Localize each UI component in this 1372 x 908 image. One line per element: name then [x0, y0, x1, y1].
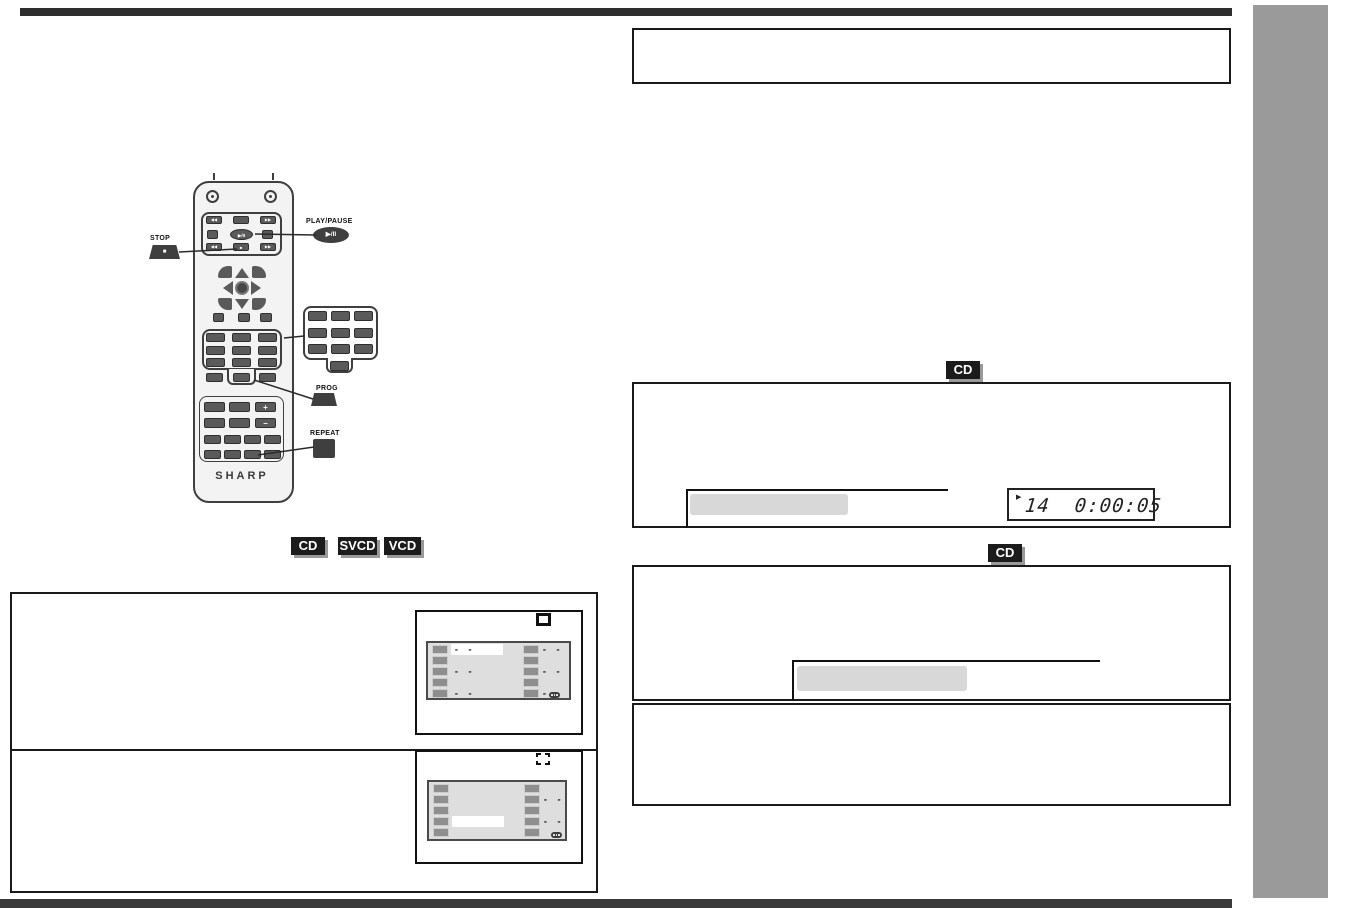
- number-key: [258, 333, 277, 342]
- repeat-callout-label: REPEAT: [310, 430, 340, 437]
- prev-key: ◀◀: [206, 216, 222, 224]
- enter-key: [235, 281, 249, 295]
- program-row: [433, 805, 561, 816]
- screen-key: [523, 645, 539, 654]
- screen-slot: [452, 827, 504, 838]
- screen-key: [433, 828, 449, 837]
- step-key: [262, 230, 273, 239]
- function-key: [264, 435, 281, 444]
- section1-cd-badge: CD: [946, 361, 980, 379]
- number-key-large: [331, 328, 350, 338]
- section3-box: [632, 703, 1231, 806]
- screen-dash: - -: [543, 817, 583, 826]
- indicator-pill-icon: [551, 832, 562, 838]
- program-row: - -- -: [432, 666, 565, 677]
- audio-key: [233, 216, 249, 224]
- function-key: [224, 435, 241, 444]
- screen-key: [433, 795, 449, 804]
- number-key: [206, 358, 225, 367]
- screen-key: [433, 817, 449, 826]
- repeat-key: [244, 450, 261, 459]
- brand-logo: SHARP: [212, 470, 272, 482]
- slow-key: [207, 230, 218, 239]
- vcd-badge: VCD: [384, 537, 421, 555]
- screen-key: [524, 795, 540, 804]
- number-key-large: [331, 344, 350, 354]
- highlighted-text-bar: [797, 666, 967, 691]
- svcd-badge: SVCD: [338, 537, 377, 555]
- highlighted-text-bar: [690, 494, 848, 515]
- screen-key: [524, 828, 540, 837]
- screen-key: [524, 817, 540, 826]
- screen-key: [523, 656, 539, 665]
- bottom-rule: [0, 899, 1232, 908]
- screen-slot: [452, 805, 504, 816]
- screen-slot: [451, 677, 503, 688]
- setup-key: [213, 313, 224, 322]
- play-pause-callout-button: ▶/II: [313, 227, 349, 243]
- number-key-large: [308, 311, 327, 321]
- function-key: [229, 402, 250, 412]
- indicator-pill-icon: [549, 692, 560, 698]
- screen-dash: - -: [542, 667, 582, 676]
- screen-slot: [451, 655, 503, 666]
- remote-antenna-tick: [272, 173, 274, 180]
- section2-cd-badge: CD: [988, 544, 1022, 562]
- function-key: [229, 418, 250, 428]
- prog-callout-button: [311, 393, 337, 406]
- program-row: - -- -: [432, 688, 565, 699]
- play-indicator-icon: ▶: [1016, 493, 1021, 501]
- number-key: [258, 358, 277, 367]
- screen-slot: [452, 783, 504, 794]
- number-key: [206, 346, 225, 355]
- function-key: [204, 402, 225, 412]
- repeat-callout-button: [313, 439, 335, 458]
- screen-key: [433, 784, 449, 793]
- screen-key: [524, 806, 540, 815]
- number-key: [232, 346, 251, 355]
- frame-icon: [536, 613, 551, 626]
- callout-leader-lines: [0, 0, 600, 600]
- screen-key: [432, 656, 448, 665]
- chapter-tab-sidebar: [1253, 5, 1328, 898]
- function-key: [204, 435, 221, 444]
- next-key: ▶▶: [260, 216, 276, 224]
- function-key: [244, 435, 261, 444]
- screen-slot: - -: [451, 688, 503, 699]
- program-row: [432, 655, 565, 666]
- stop-callout-button: ■: [149, 245, 180, 259]
- title-key: [238, 313, 250, 322]
- remote-antenna-tick: [213, 173, 215, 180]
- screen-key: [432, 645, 448, 654]
- program-menu-panel-1: - -- -- -- -- -- -: [426, 641, 571, 700]
- screen-dash: - -: [542, 645, 582, 654]
- program-row: - -: [433, 794, 561, 805]
- program-row: [432, 677, 565, 688]
- screen-key: [433, 806, 449, 815]
- stop-callout-label: STOP: [150, 235, 170, 242]
- stop-key: ■: [233, 243, 249, 251]
- number-key-large: [354, 328, 373, 338]
- screen-dash: - -: [542, 689, 582, 698]
- screen-key: [523, 667, 539, 676]
- ff-key: ▶▶: [260, 243, 276, 251]
- program-row: - -: [433, 816, 561, 827]
- screen-key: [523, 678, 539, 687]
- number-key-large: [331, 311, 350, 321]
- program-row: [433, 827, 561, 838]
- function-key: [264, 450, 281, 459]
- prog-key: [259, 373, 276, 382]
- number-key-large: [330, 361, 349, 371]
- number-key: [206, 333, 225, 342]
- screen-key: [432, 689, 448, 698]
- section2-box: [632, 565, 1231, 701]
- eject-button: [264, 190, 277, 203]
- number-key: [232, 333, 251, 342]
- program-menu-panel-2: - -- -: [427, 780, 567, 841]
- screen-slot: [452, 794, 504, 805]
- screen-key: [524, 784, 540, 793]
- power-button: [206, 190, 219, 203]
- function-key: [224, 450, 241, 459]
- cd-badge: CD: [291, 537, 325, 555]
- number-key-10plus: [233, 373, 250, 382]
- program-row: [433, 783, 561, 794]
- screen-key: [432, 678, 448, 687]
- number-key: [258, 346, 277, 355]
- screen-key: [432, 667, 448, 676]
- play-pause-callout-label: PLAY/PAUSE: [306, 218, 353, 225]
- screen-key: [523, 689, 539, 698]
- screen-input-highlight: - -: [451, 644, 503, 655]
- function-key: [204, 418, 225, 428]
- fl-display-readout: ▶ 14 0:00:05: [1007, 488, 1155, 521]
- number-key-large: [308, 328, 327, 338]
- screen-dash: - -: [543, 795, 583, 804]
- prog-callout-label: PROG: [316, 385, 338, 392]
- volume-plus-key: +: [255, 402, 276, 412]
- remote-illustration: ◀◀ ▶▶ ▶/II ◀◀ ■ ▶▶: [0, 0, 600, 600]
- number-key-large: [354, 344, 373, 354]
- clear-key: [206, 373, 223, 382]
- number-key-large: [308, 344, 327, 354]
- display-track-time: 14 0:00:05: [1024, 495, 1163, 517]
- play-pause-key: ▶/II: [230, 229, 253, 240]
- rew-key: ◀◀: [206, 243, 222, 251]
- volume-minus-key: −: [255, 418, 276, 428]
- number-key: [232, 358, 251, 367]
- screen-input-highlight: [452, 816, 504, 827]
- function-key: [204, 450, 221, 459]
- number-key-large: [354, 311, 373, 321]
- manual-page: ◀◀ ▶▶ ▶/II ◀◀ ■ ▶▶: [0, 0, 1372, 908]
- program-row: - -- -: [432, 644, 565, 655]
- corners-icon: [536, 753, 550, 765]
- note-box-top: [632, 28, 1231, 84]
- screen-slot: - -: [451, 666, 503, 677]
- menu-key: [260, 313, 272, 322]
